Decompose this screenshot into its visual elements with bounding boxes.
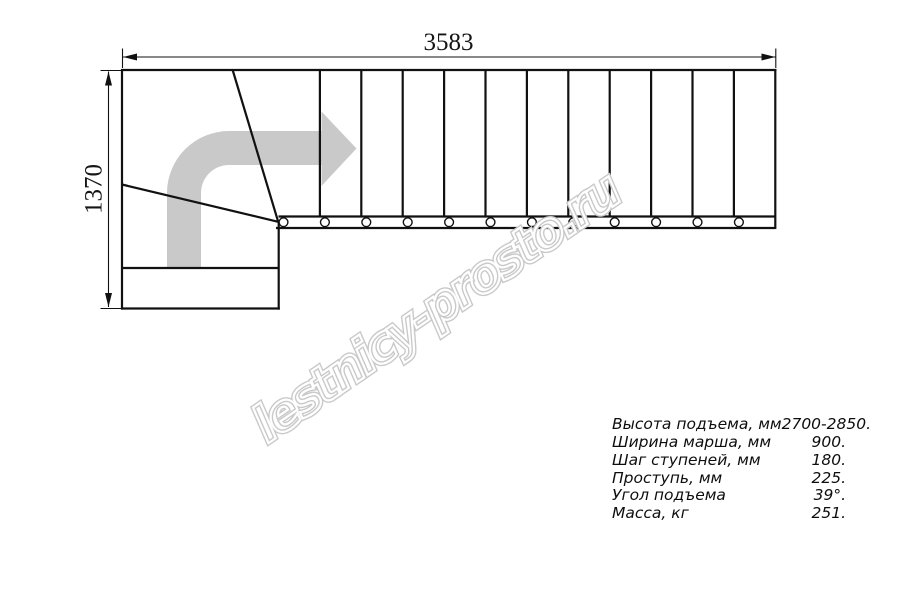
spec-value: 180. bbox=[811, 452, 846, 470]
spec-value: 225. bbox=[811, 470, 846, 488]
spec-row: Угол подъема 39°. bbox=[612, 487, 846, 505]
h-dim-arrow-left bbox=[123, 54, 137, 61]
h-dim-label: 3583 bbox=[424, 29, 474, 56]
vertical-dimension: 1370 bbox=[81, 71, 122, 309]
baluster-circle bbox=[321, 218, 330, 227]
baluster-circle bbox=[362, 218, 371, 227]
spec-label: Угол подъема bbox=[612, 487, 726, 505]
spec-row: Шаг ступеней, мм 180. bbox=[612, 452, 846, 470]
tread-lines bbox=[320, 69, 734, 217]
watermark: lestnicy-prosto.ru lestnicy-prosto.ru bbox=[241, 160, 631, 454]
spec-label: Ширина марша, мм bbox=[612, 434, 771, 452]
baluster-circle bbox=[693, 218, 702, 227]
spec-label: Проступь, мм bbox=[612, 470, 722, 488]
watermark-text-core: lestnicy-prosto.ru bbox=[241, 160, 631, 454]
direction-arrow bbox=[167, 112, 357, 269]
v-dim-arrow-bottom bbox=[105, 293, 112, 307]
v-dim-arrow-top bbox=[105, 72, 112, 86]
baluster-circle bbox=[445, 218, 454, 227]
spec-value: 251. bbox=[811, 505, 846, 523]
spec-value: 2700-2850. bbox=[782, 416, 871, 434]
spec-label: Масса, кг bbox=[612, 505, 689, 523]
spec-row: Масса, кг 251. bbox=[612, 505, 846, 523]
baluster-circle bbox=[652, 218, 661, 227]
v-dim-label: 1370 bbox=[81, 164, 108, 214]
spec-label: Высота подъема, мм bbox=[612, 416, 782, 434]
h-dim-arrow-right bbox=[762, 54, 776, 61]
baluster-circle bbox=[486, 218, 495, 227]
spec-row: Ширина марша, мм 900. bbox=[612, 434, 846, 452]
baluster-circle bbox=[279, 218, 288, 227]
spec-value: 39°. bbox=[814, 487, 846, 505]
spec-value: 900. bbox=[811, 434, 846, 452]
spec-row: Высота подъема, мм 2700-2850. bbox=[612, 416, 846, 434]
baluster-circle bbox=[735, 218, 744, 227]
stair-plan-page: 3583 1370 lestnicy-prosto.ru lestnicy-pr… bbox=[0, 0, 900, 600]
spec-table: Высота подъема, мм 2700-2850. Ширина мар… bbox=[612, 416, 846, 523]
horizontal-dimension: 3583 bbox=[123, 29, 776, 68]
baluster-circle bbox=[403, 218, 412, 227]
spec-label: Шаг ступеней, мм bbox=[612, 452, 761, 470]
spec-row: Проступь, мм 225. bbox=[612, 470, 846, 488]
